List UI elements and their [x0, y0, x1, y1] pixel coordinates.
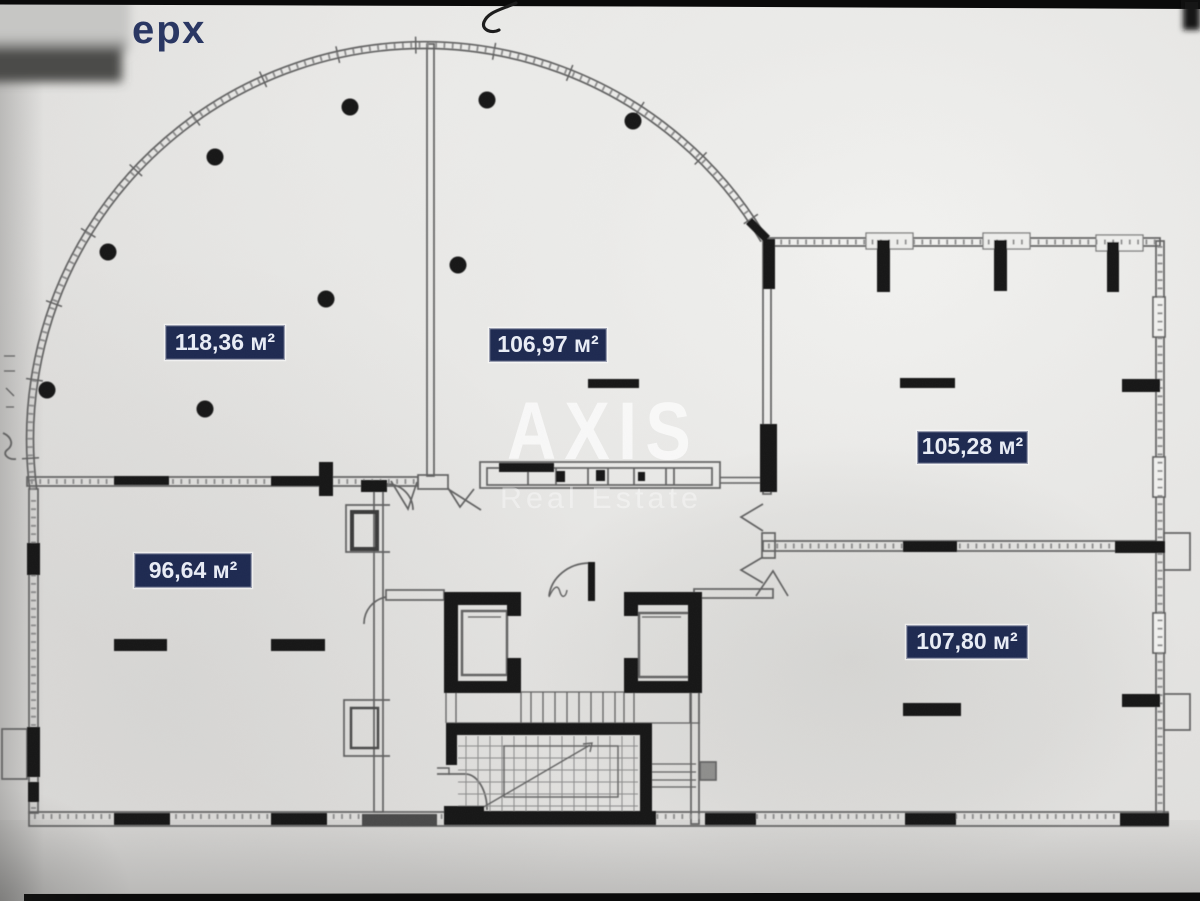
svg-text:ерх: ерх — [132, 8, 206, 52]
